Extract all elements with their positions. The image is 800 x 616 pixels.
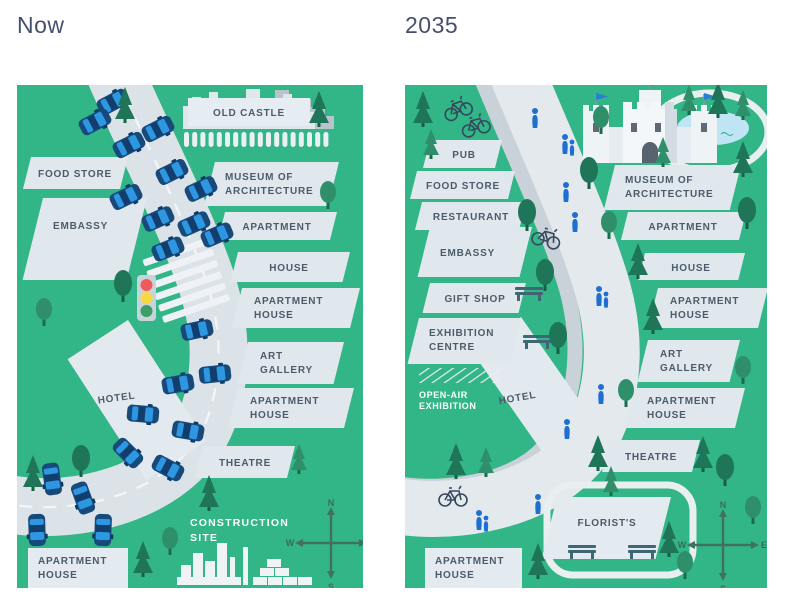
label-apartment-house-1: APARTMENT HOUSE <box>648 288 767 328</box>
car-icon <box>92 514 114 547</box>
apartment-label: APARTMENT <box>648 222 717 233</box>
svg-text:SITE: SITE <box>190 532 218 544</box>
svg-text:ART: ART <box>260 351 283 362</box>
svg-text:CENTRE: CENTRE <box>429 342 475 353</box>
svg-text:E: E <box>761 540 767 550</box>
svg-text:HOUSE: HOUSE <box>670 310 710 321</box>
label-house: HOUSE <box>231 252 350 282</box>
label-gift-shop: GIFT SHOP <box>423 283 526 313</box>
old-castle-label: OLD CASTLE <box>213 108 285 119</box>
svg-text:W: W <box>678 540 687 550</box>
pedestrian-icon <box>598 384 604 404</box>
label-museum: MUSEUM OF ARCHITECTURE <box>604 165 741 210</box>
house-label: HOUSE <box>269 263 309 274</box>
car-icon <box>26 514 48 547</box>
svg-text:HOUSE: HOUSE <box>254 310 294 321</box>
svg-text:GALLERY: GALLERY <box>660 363 713 374</box>
svg-text:APARTMENT: APARTMENT <box>254 296 323 307</box>
label-apartment-house-3: APARTMENT HOUSE <box>425 548 522 588</box>
hatched-area <box>419 368 501 383</box>
pedestrian-icon <box>564 419 570 439</box>
svg-text:APARTMENT: APARTMENT <box>670 296 739 307</box>
pedestrian-icon <box>563 182 569 202</box>
label-exhibition-centre: EXHIBITION CENTRE <box>408 318 521 364</box>
label-theatre: THEATRE <box>195 446 295 478</box>
label-apartment-house-2: APARTMENT HOUSE <box>625 388 745 428</box>
svg-text:MUSEUM OF: MUSEUM OF <box>225 172 293 183</box>
restaurant-label: RESTAURANT <box>433 212 509 223</box>
food-store-label: FOOD STORE <box>426 181 500 192</box>
label-house: HOUSE <box>638 253 745 280</box>
pub-label: PUB <box>452 150 476 161</box>
svg-text:HOUSE: HOUSE <box>647 410 687 421</box>
svg-text:HOUSE: HOUSE <box>435 570 475 581</box>
embassy-label: EMBASSY <box>53 221 108 232</box>
theatre-label: THEATRE <box>625 452 677 463</box>
label-theatre: THEATRE <box>602 440 700 472</box>
pedestrian-icon <box>532 108 538 128</box>
svg-text:APARTMENT: APARTMENT <box>435 556 504 567</box>
svg-text:ARCHITECTURE: ARCHITECTURE <box>625 189 714 200</box>
food-store-label: FOOD STORE <box>38 169 112 180</box>
label-art-gallery: ART GALLERY <box>238 342 344 384</box>
label-apartment-house-1: APARTMENT HOUSE <box>232 288 360 328</box>
embassy-label: EMBASSY <box>440 248 495 259</box>
traffic-light-icon <box>137 275 156 321</box>
map-now-illustration: OLD CASTLE FOOD STORE EMBASSY MUSEUM OF … <box>17 85 363 588</box>
svg-text:N: N <box>328 498 335 508</box>
svg-text:APARTMENT: APARTMENT <box>647 396 716 407</box>
label-apartment-house-3: APARTMENT HOUSE <box>28 548 128 588</box>
florists-label: FLORIST'S <box>577 518 636 529</box>
svg-text:EXHIBITION: EXHIBITION <box>429 328 494 339</box>
svg-text:APARTMENT: APARTMENT <box>38 556 107 567</box>
svg-text:S: S <box>328 582 334 588</box>
label-old-castle: OLD CASTLE <box>188 98 310 126</box>
pedestrian-icon <box>572 212 578 232</box>
svg-text:HOUSE: HOUSE <box>38 570 78 581</box>
label-apartment-house-2: APARTMENT HOUSE <box>228 388 354 428</box>
apartment-label: APARTMENT <box>242 222 311 233</box>
svg-text:HOUSE: HOUSE <box>250 410 290 421</box>
label-embassy: EMBASSY <box>23 198 147 280</box>
svg-text:APARTMENT: APARTMENT <box>250 396 319 407</box>
gift-shop-label: GIFT SHOP <box>444 294 505 305</box>
svg-text:N: N <box>720 500 727 510</box>
theatre-label: THEATRE <box>219 458 271 469</box>
map-future-illustration: FLORIST'S PUB FOOD STORE RESTAURANT EMBA… <box>405 85 767 588</box>
svg-text:ARCHITECTURE: ARCHITECTURE <box>225 186 314 197</box>
castle-door <box>642 142 658 163</box>
svg-text:CONSTRUCTION: CONSTRUCTION <box>190 517 289 529</box>
label-art-gallery: ART GALLERY <box>638 340 740 382</box>
svg-text:S: S <box>720 584 726 588</box>
label-embassy: EMBASSY <box>418 227 532 277</box>
house-label: HOUSE <box>671 263 711 274</box>
ielts-map-comparison: Now 2035 <box>0 0 800 616</box>
svg-text:W: W <box>286 538 295 548</box>
label-food-store: FOOD STORE <box>410 171 515 199</box>
svg-text:MUSEUM OF: MUSEUM OF <box>625 175 693 186</box>
svg-text:EXHIBITION: EXHIBITION <box>419 401 477 411</box>
label-apartment: APARTMENT <box>621 212 746 240</box>
label-florists: FLORIST'S <box>542 497 671 559</box>
title-now: Now <box>17 12 65 39</box>
label-food-store: FOOD STORE <box>23 157 128 189</box>
svg-text:OPEN-AIR: OPEN-AIR <box>419 390 468 400</box>
pedestrian-icon <box>535 494 541 514</box>
svg-text:GALLERY: GALLERY <box>260 365 313 376</box>
title-future: 2035 <box>405 12 458 39</box>
label-museum: MUSEUM OF ARCHITECTURE <box>204 162 339 206</box>
label-restaurant: RESTAURANT <box>415 202 526 230</box>
svg-text:ART: ART <box>660 349 683 360</box>
label-apartment: APARTMENT <box>218 212 337 240</box>
